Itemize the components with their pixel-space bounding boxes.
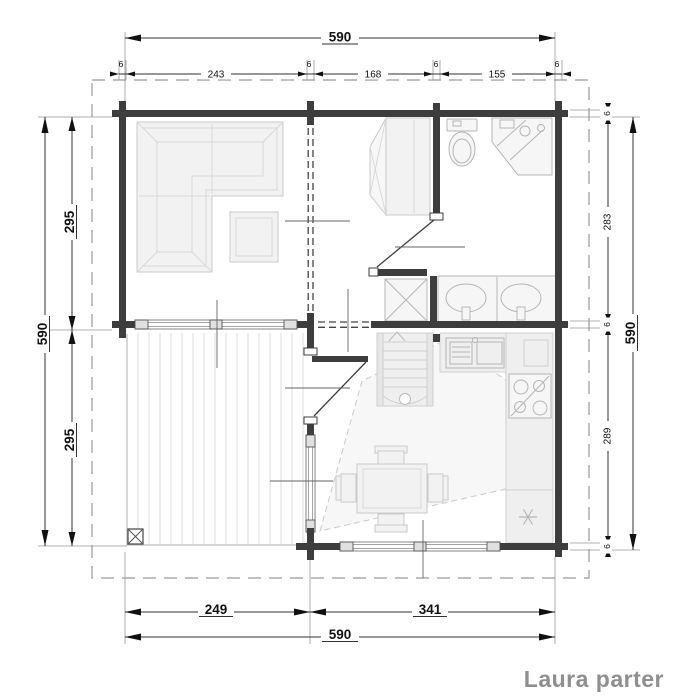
dining-chair: [378, 451, 404, 464]
dim-right-seg-0: 6: [602, 111, 612, 116]
staircase: [377, 332, 433, 406]
window-kitchen: [340, 542, 500, 551]
wall-south: [500, 543, 568, 550]
floor-plan-canvas: 590 6 243 6 168 6 155 6 590 295: [0, 0, 700, 700]
dining-table: [357, 464, 427, 513]
dashed-opening-middle-wall: [318, 322, 371, 327]
terrace: [127, 333, 308, 545]
dim-top-seg-0: 6: [119, 59, 124, 69]
drawing-title: Laura parter: [524, 666, 664, 692]
dim-top-seg-5: 155: [489, 70, 506, 81]
wall-middle: [112, 321, 135, 328]
dim-right-seg-3: 289: [603, 427, 614, 444]
dimension-top: 590 6 243 6 168 6 155 6: [110, 29, 571, 81]
toilet: [447, 119, 477, 166]
dim-top-seg-4: 6: [434, 59, 439, 69]
dim-top-seg-3: 168: [365, 70, 382, 81]
shower-tray: [385, 279, 427, 321]
dimension-bottom: 249 341 590: [125, 602, 555, 643]
dim-bottom-seg-1: 341: [419, 602, 442, 617]
wardrobe: [370, 118, 430, 215]
floor-plan-page: 590 6 243 6 168 6 155 6 590 295: [0, 0, 700, 700]
dim-top-seg-1: 243: [208, 70, 225, 81]
wall-middle: [297, 321, 310, 328]
dim-bottom-seg-0: 249: [205, 602, 228, 617]
dashed-partition-living-bedroom: [308, 117, 313, 313]
dining-chair: [428, 474, 443, 502]
wall-alcove-north: [373, 269, 427, 276]
dim-right-seg-1: 283: [603, 213, 614, 230]
wall-west: [119, 101, 126, 338]
wall-bathroom: [433, 103, 440, 220]
dining-chair: [341, 474, 356, 502]
wall-joint: [433, 334, 440, 342]
kitchen-sink: [440, 333, 506, 372]
wall-north: [112, 110, 568, 117]
kitchen-counter: [506, 333, 553, 543]
stove: [509, 374, 551, 418]
coffee-table: [230, 212, 278, 262]
window-terrace-wall: [306, 435, 315, 532]
window-living-room: [135, 320, 297, 329]
deck-boards: [138, 333, 303, 544]
terrace-post: [128, 529, 143, 544]
door-bedroom: [369, 213, 443, 276]
dim-top-seg-6: 6: [555, 59, 560, 69]
dim-top-seg-2: 6: [307, 59, 312, 69]
wall-south: [296, 543, 340, 550]
dimension-right: 6 283 6 289 6 590: [600, 103, 638, 557]
dimension-left: 590 295 295: [35, 117, 77, 546]
dim-right-total: 590: [623, 322, 638, 345]
dining-chair: [375, 525, 407, 532]
double-washbasin: [438, 276, 556, 324]
dim-bottom-total: 590: [329, 627, 352, 642]
corner-shower: [492, 118, 552, 175]
door-leaf: [312, 356, 368, 362]
dim-left-seg-1: 295: [62, 428, 77, 451]
wall-middle: [371, 321, 568, 328]
dim-right-seg-4: 6: [602, 544, 612, 549]
wall-east: [555, 101, 562, 557]
wall-alcove-east: [430, 276, 437, 328]
dim-left-total: 590: [35, 323, 50, 346]
dim-right-seg-2: 6: [602, 322, 612, 327]
dim-top-total: 590: [329, 30, 352, 45]
dim-left-seg-0: 295: [62, 210, 77, 233]
